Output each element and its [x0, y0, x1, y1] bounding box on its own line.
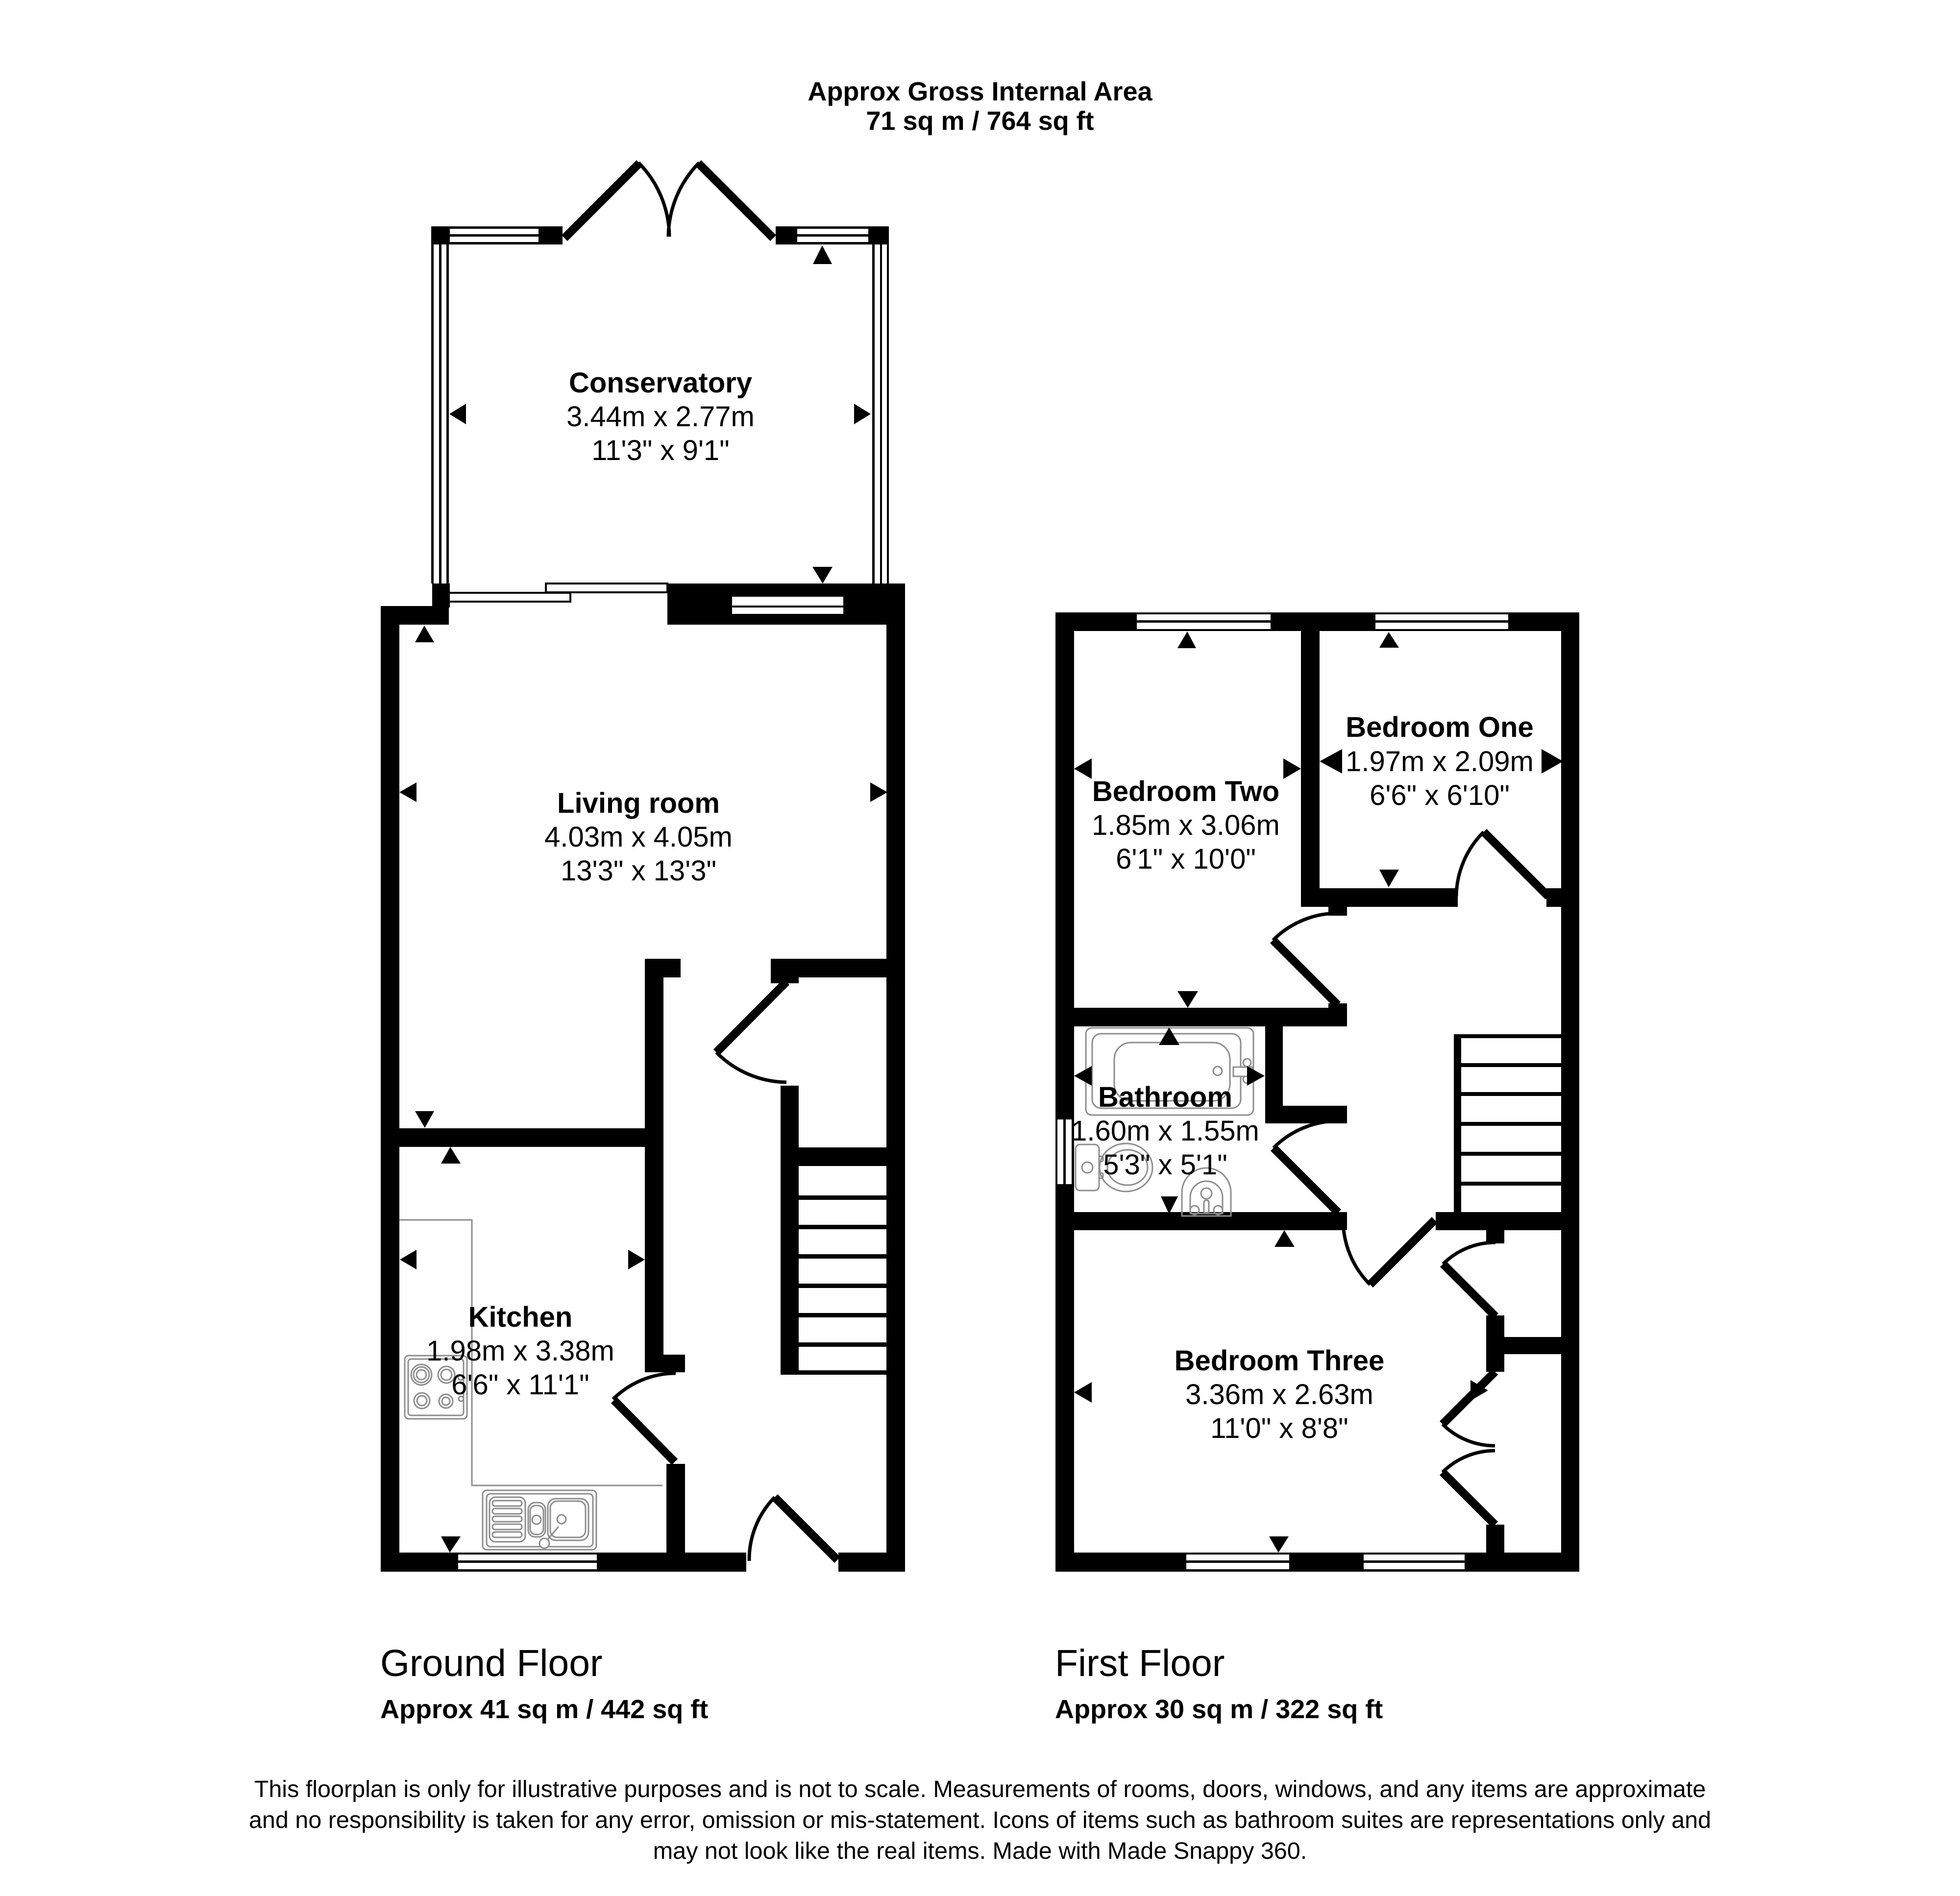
svg-text:1.98m x 3.38m: 1.98m x 3.38m: [426, 1335, 614, 1367]
svg-text:11'3" x 9'1": 11'3" x 9'1": [591, 435, 730, 466]
svg-text:1.60m x 1.55m: 1.60m x 1.55m: [1071, 1115, 1259, 1147]
svg-text:First Floor: First Floor: [1055, 1642, 1225, 1684]
svg-text:Approx Gross Internal Area: Approx Gross Internal Area: [808, 77, 1152, 106]
svg-text:Living room: Living room: [557, 787, 720, 819]
svg-text:Conservatory: Conservatory: [569, 367, 752, 399]
svg-text:may not look like the real ite: may not look like the real items. Made w…: [653, 1838, 1307, 1864]
svg-text:Bathroom: Bathroom: [1098, 1081, 1232, 1113]
svg-text:4.03m x 4.05m: 4.03m x 4.05m: [544, 821, 733, 853]
svg-text:and no responsibility is taken: and no responsibility is taken for any e…: [249, 1807, 1711, 1833]
svg-text:13'3" x 13'3": 13'3" x 13'3": [561, 855, 716, 887]
svg-text:Approx 30 sq m / 322 sq ft: Approx 30 sq m / 322 sq ft: [1055, 1695, 1383, 1724]
svg-text:Bedroom Two: Bedroom Two: [1092, 776, 1279, 807]
svg-text:1.97m x 2.09m: 1.97m x 2.09m: [1346, 746, 1534, 778]
svg-text:Kitchen: Kitchen: [468, 1301, 573, 1333]
svg-text:6'1" x 10'0": 6'1" x 10'0": [1116, 843, 1256, 875]
svg-text:11'0" x 8'8": 11'0" x 8'8": [1210, 1412, 1348, 1444]
svg-text:Ground Floor: Ground Floor: [380, 1642, 603, 1684]
svg-text:3.44m x 2.77m: 3.44m x 2.77m: [566, 401, 755, 433]
svg-text:3.36m x 2.63m: 3.36m x 2.63m: [1185, 1379, 1373, 1410]
svg-text:Bedroom Three: Bedroom Three: [1175, 1345, 1385, 1377]
svg-text:71 sq m / 764 sq ft: 71 sq m / 764 sq ft: [866, 106, 1094, 136]
svg-text:5'3" x 5'1": 5'3" x 5'1": [1103, 1149, 1227, 1181]
svg-text:This floorplan is only for ill: This floorplan is only for illustrative …: [254, 1776, 1706, 1802]
svg-text:Bedroom One: Bedroom One: [1346, 711, 1534, 743]
svg-text:6'6" x 11'1": 6'6" x 11'1": [451, 1369, 589, 1401]
svg-text:6'6" x 6'10": 6'6" x 6'10": [1370, 779, 1510, 811]
svg-text:1.85m x 3.06m: 1.85m x 3.06m: [1092, 809, 1280, 841]
svg-text:Approx 41 sq m / 442 sq ft: Approx 41 sq m / 442 sq ft: [380, 1695, 708, 1724]
